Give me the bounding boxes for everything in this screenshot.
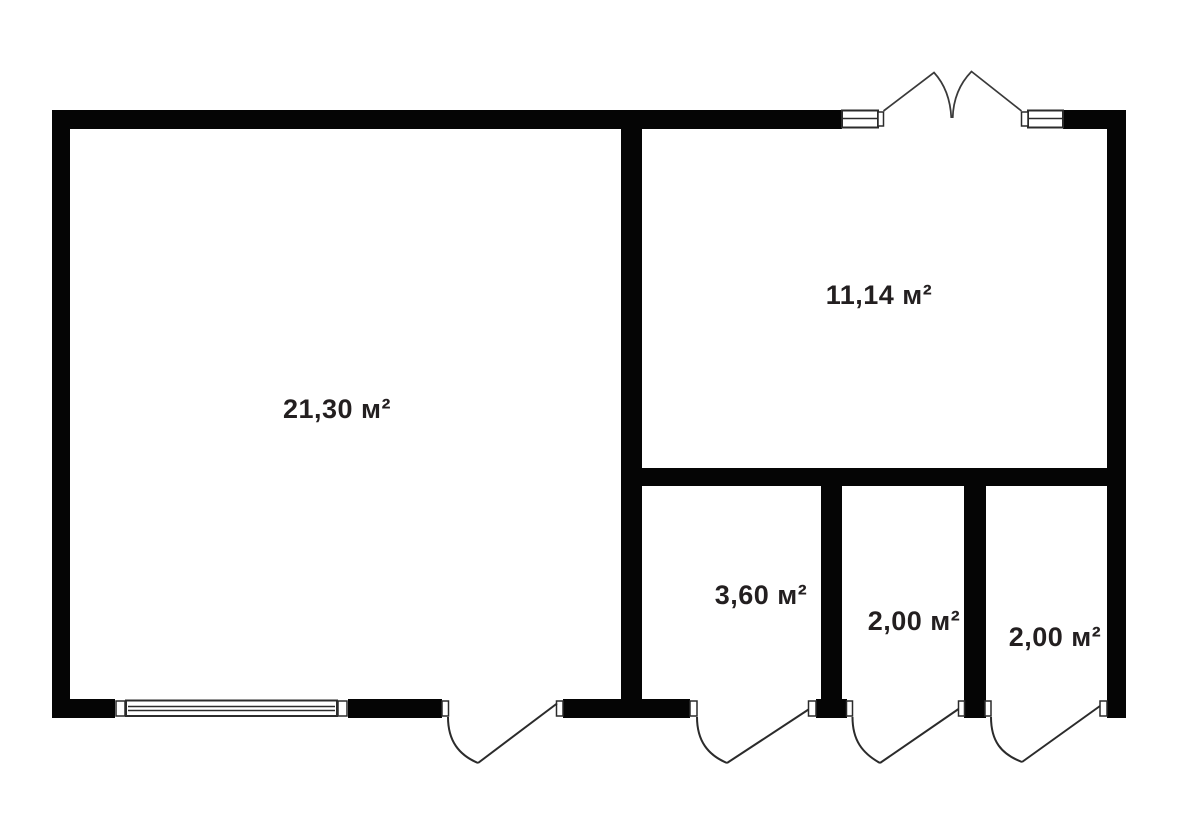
door-lower-room-1 [690,701,816,763]
door-leaf [478,704,557,764]
floor-plan: 21,30 м² 11,14 м² 3,60 м² 2,00 м² 2,00 м… [0,0,1200,828]
window-bottom-left [115,698,348,719]
door-lower-room-2 [847,701,965,763]
room-area-label-lower-room-3: 2,00 м² [1009,622,1102,652]
window-jamb-right [338,701,347,716]
wall-divider-small-2 [964,486,986,718]
door-jamb [1100,701,1107,716]
door-swing-arc [853,717,881,763]
french-door-top [842,72,1063,128]
wall-bottom-segment-b [348,699,442,718]
door-swing-arc [448,717,478,763]
door-swing-arc [991,717,1022,762]
room-area-label-large-room: 21,30 м² [283,394,391,424]
door-jamb [809,701,817,716]
french-door-swing-left [884,73,952,119]
door-swing-arc [697,717,727,763]
french-door-jamb-left [878,112,884,126]
walls [52,110,1126,718]
door-leaf [880,709,959,763]
door-jamb [985,701,991,716]
wall-top-left-segment [52,110,842,129]
door-jamb [690,701,697,716]
room-area-label-lower-room-1: 3,60 м² [715,580,808,610]
door-lower-room-3 [985,701,1107,762]
wall-bottom-segment-a [52,699,115,718]
wall-left [52,110,70,718]
french-door-swing-right [953,72,1022,119]
window-jamb-left [116,701,125,716]
french-door-jamb-right [1022,112,1029,126]
door-jamb [442,701,449,716]
door-leaf [1022,706,1100,762]
wall-divider-horizontal [621,468,1107,486]
door-jamb [847,701,853,716]
floor-plan-drawing: 21,30 м² 11,14 м² 3,60 м² 2,00 м² 2,00 м… [0,0,1200,828]
wall-right [1107,110,1126,718]
door-leaf [727,710,809,764]
wall-divider-main [621,110,642,718]
room-area-label-upper-right: 11,14 м² [826,280,933,310]
door-large-room [442,701,563,763]
wall-divider-small-1 [821,486,842,718]
room-area-label-lower-room-2: 2,00 м² [868,606,961,636]
door-jamb [557,701,564,716]
door-jamb [959,701,965,716]
window-frame [126,701,337,717]
